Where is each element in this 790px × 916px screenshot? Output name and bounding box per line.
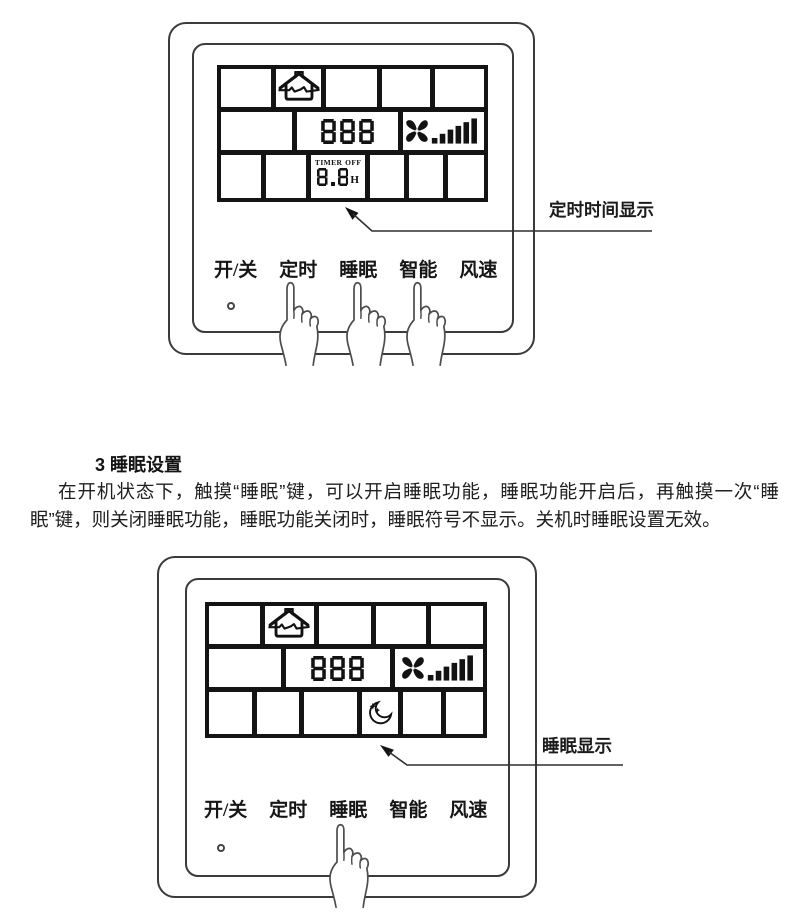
lcd-cell (446, 692, 483, 734)
lcd-cell (448, 155, 484, 198)
lcd-cell (435, 69, 484, 107)
sleep-callout-label: 睡眠显示 (542, 733, 612, 758)
pointing-hand-icon (342, 279, 390, 367)
key-smart: 智能 (399, 255, 437, 282)
lcd-cell-fan-speed (395, 649, 483, 687)
fan-speed-icon (399, 654, 479, 682)
indicator-led (217, 844, 225, 852)
lcd-cell (304, 692, 356, 734)
lcd-row-2 (221, 112, 484, 150)
key-sleep: 睡眠 (339, 255, 377, 282)
lcd-cell-house (276, 69, 321, 107)
lcd-cell (403, 692, 440, 734)
lcd-cell (376, 606, 426, 644)
temperature-digits (311, 656, 364, 681)
key-timer: 定时 (279, 255, 317, 282)
pointing-hand-icon (402, 279, 450, 367)
lcd-cell (209, 649, 281, 687)
pointing-hand-icon (275, 279, 323, 367)
house-airflow-icon (277, 71, 321, 105)
lcd-cell-sleep (362, 692, 398, 734)
key-power: 开/关 (204, 795, 247, 822)
lcd-cell (221, 155, 261, 198)
key-smart: 智能 (389, 795, 427, 822)
lcd-cell (370, 155, 403, 198)
key-fan-speed: 风速 (449, 795, 487, 822)
key-sleep: 睡眠 (329, 795, 367, 822)
lcd-row-3 (209, 692, 483, 734)
indicator-led (227, 302, 235, 310)
lcd-cell-temperature (297, 112, 398, 150)
lcd-cell-timer: TIMER OFF H (311, 155, 365, 198)
lcd-cell-fan-speed (403, 112, 484, 150)
lcd-cell (209, 606, 260, 644)
house-airflow-icon (267, 608, 311, 642)
lcd-display: TIMER OFF H (217, 65, 488, 202)
lcd-row-3: TIMER OFF H (221, 155, 484, 198)
lcd-cell (209, 692, 252, 734)
key-timer: 定时 (269, 795, 307, 822)
key-power: 开/关 (214, 255, 257, 282)
timer-callout-label: 定时时间显示 (549, 197, 654, 222)
lcd-row-2 (209, 649, 483, 687)
key-fan-speed: 风速 (459, 255, 497, 282)
lcd-display (205, 602, 487, 738)
pointing-hand-icon (325, 819, 373, 911)
lcd-row-1 (221, 69, 484, 107)
lcd-cell (382, 69, 430, 107)
lcd-cell (221, 112, 292, 150)
timer-label: TIMER (315, 158, 342, 167)
lcd-cell (266, 155, 306, 198)
moon-stars-icon (368, 700, 393, 726)
section-body: 在开机状态下，触摸“睡眠”键，可以开启睡眠功能，睡眠功能开启后，再触摸一次“睡眠… (30, 478, 779, 533)
timer-state-off: OFF (345, 158, 361, 167)
timer-hours-unit: H (350, 174, 359, 186)
lcd-cell (431, 606, 483, 644)
lcd-cell (257, 692, 300, 734)
lcd-cell-house (265, 606, 314, 644)
touch-keys: 开/关 定时 睡眠 智能 风速 (204, 795, 487, 822)
temperature-digits (321, 119, 374, 144)
lcd-cell (326, 69, 377, 107)
timer-hours-digits (317, 168, 348, 186)
lcd-cell (409, 155, 443, 198)
manual-page: TIMER OFF H 定时时间显示 开/关 定时 (0, 0, 790, 916)
fan-speed-icon (403, 117, 483, 145)
section-heading: 3 睡眠设置 (95, 451, 182, 477)
lcd-cell (319, 606, 372, 644)
lcd-cell-temperature (286, 649, 390, 687)
touch-keys: 开/关 定时 睡眠 智能 风速 (214, 255, 497, 282)
lcd-row-1 (209, 606, 483, 644)
lcd-cell (221, 69, 271, 107)
